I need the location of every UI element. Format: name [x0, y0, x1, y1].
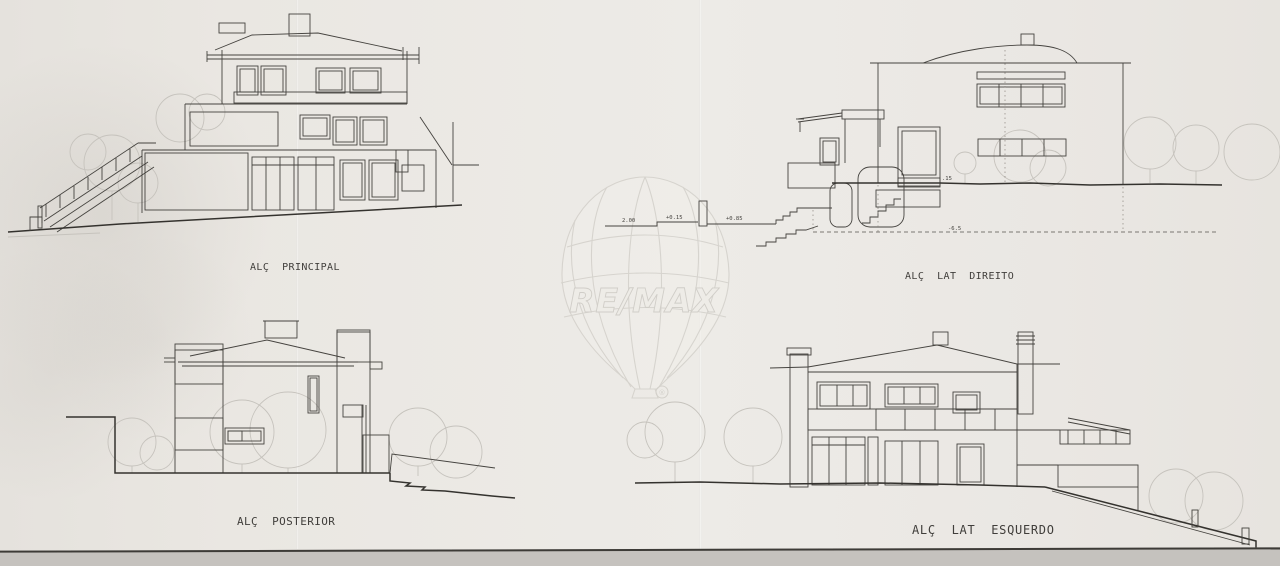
elevation-lat-direito-drawing: 2.00 +0.15 +0.85 — [600, 20, 1260, 250]
ground-line — [66, 417, 515, 498]
tree-sketches — [70, 94, 225, 222]
stair-tower-left — [164, 344, 223, 473]
floor-band — [808, 409, 1017, 430]
stair-tower — [787, 348, 811, 487]
entry-stairs — [756, 163, 904, 246]
upper-floor — [817, 382, 980, 413]
ground-floor — [142, 117, 479, 213]
chimney — [289, 14, 310, 36]
roof — [178, 321, 358, 366]
caption-alc-lat-direito: ALÇ LAT DIREITO — [905, 271, 1014, 282]
ground-and-dimension: -6.5 — [813, 183, 1222, 232]
svg-text:2.00: 2.00 — [622, 218, 635, 224]
svg-text:.15: .15 — [942, 176, 952, 182]
main-block: .15 — [870, 34, 1131, 207]
tree-sketches — [108, 392, 482, 478]
wall-section-line: 2.00 +0.15 +0.85 — [605, 201, 832, 226]
caption-alc-principal: ALÇ PRINCIPAL — [250, 262, 340, 273]
paper-bottom-edge — [0, 547, 1280, 566]
caption-alc-lat-esquerdo: ALÇ LAT ESQUERDO — [912, 523, 1055, 537]
lower-floor — [812, 364, 1017, 487]
svg-text:+0.15: +0.15 — [666, 215, 683, 221]
caption-alc-posterior: ALÇ POSTERIOR — [237, 515, 335, 528]
svg-text:+0.85: +0.85 — [726, 216, 743, 222]
elevation-posterior-drawing — [60, 310, 520, 510]
middle-floor — [185, 104, 407, 150]
tree-sketches — [954, 117, 1280, 186]
tower-right — [337, 330, 389, 473]
balustrade — [234, 92, 407, 103]
elevation-principal-drawing — [0, 0, 480, 250]
left-wing — [796, 110, 884, 165]
remax-wordmark: RE/MAX — [569, 281, 719, 320]
top-floor — [222, 50, 407, 104]
roof — [770, 332, 1060, 414]
right-wing-pergola — [1017, 418, 1138, 510]
rear-wall — [225, 376, 319, 444]
scanned-elevation-sheet: RE/MAX ® — [0, 0, 1280, 566]
roof — [207, 14, 419, 64]
svg-text:-6.5: -6.5 — [948, 226, 961, 232]
